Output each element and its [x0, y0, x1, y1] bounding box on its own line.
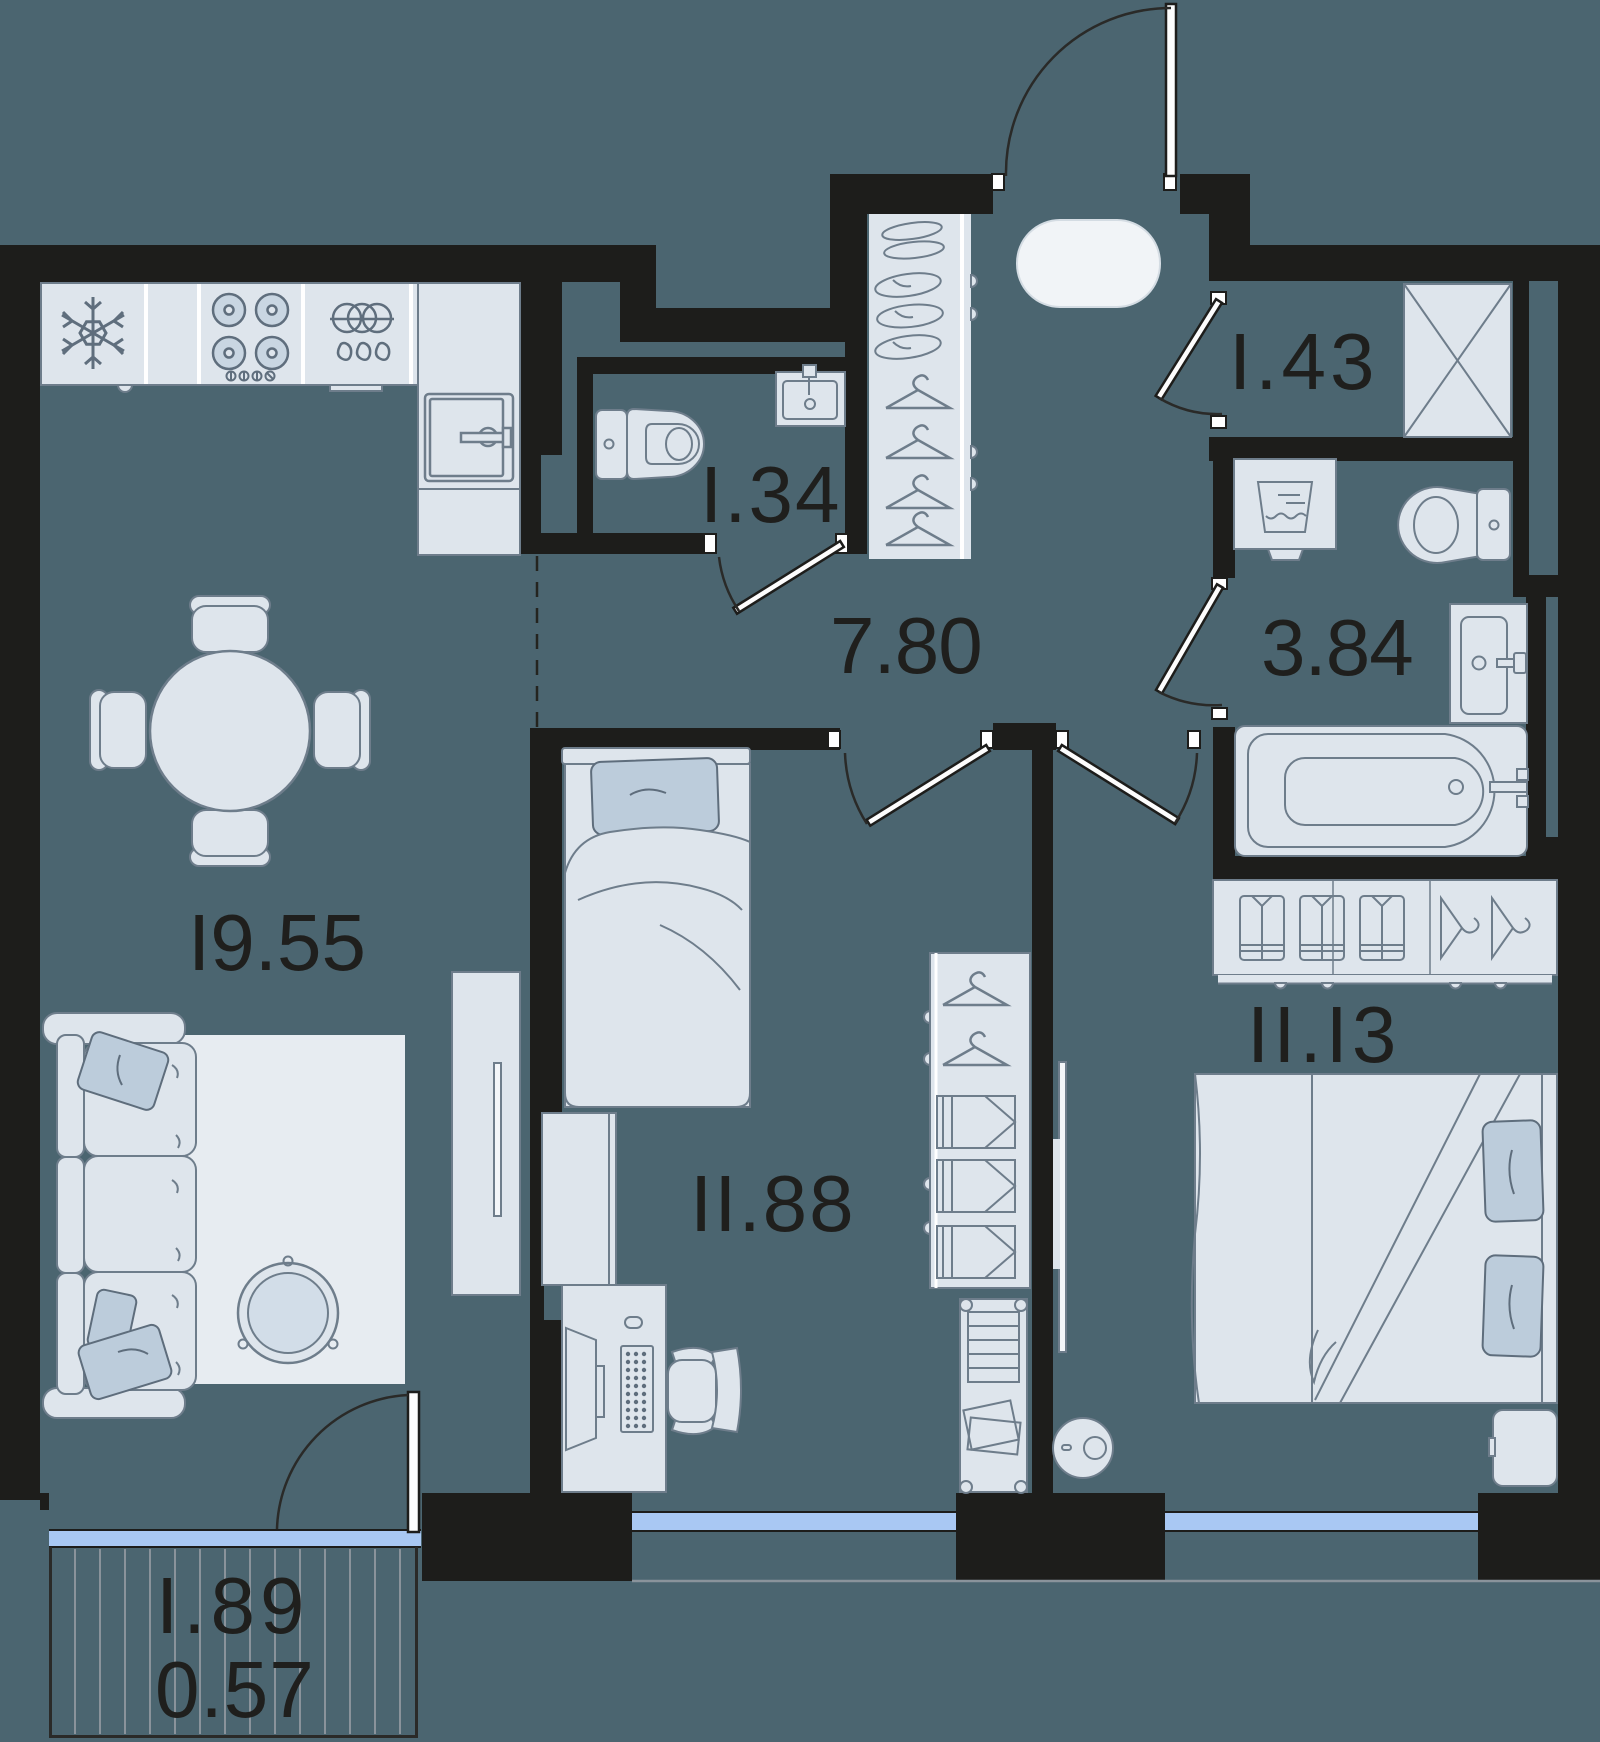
- svg-text:I.43: I.43: [1229, 317, 1378, 406]
- svg-text:I.89: I.89: [156, 1561, 309, 1650]
- svg-text:0.57: 0.57: [155, 1645, 315, 1734]
- svg-text:II.88: II.88: [690, 1159, 856, 1248]
- svg-text:I9.55: I9.55: [188, 898, 366, 987]
- svg-text:II.I3: II.I3: [1247, 990, 1400, 1079]
- svg-text:I.34: I.34: [700, 450, 841, 539]
- svg-text:3.84: 3.84: [1261, 603, 1413, 692]
- svg-text:7.80: 7.80: [830, 601, 982, 690]
